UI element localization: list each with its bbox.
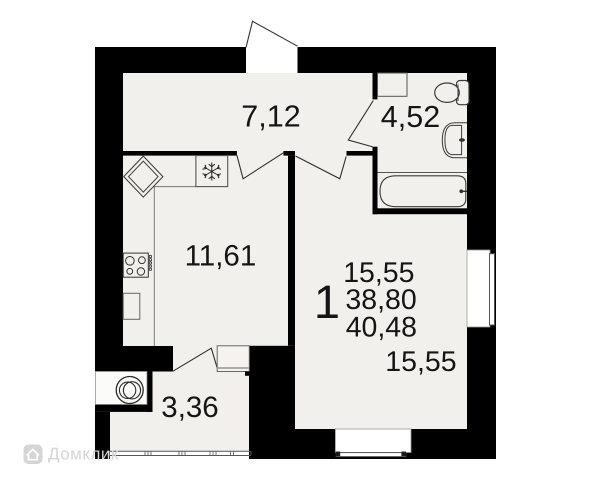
svg-text:Домклик: Домклик bbox=[48, 445, 119, 464]
svg-text:40,48: 40,48 bbox=[346, 311, 417, 343]
svg-text:1: 1 bbox=[314, 275, 340, 328]
svg-text:11,61: 11,61 bbox=[185, 239, 257, 272]
svg-text:15,55: 15,55 bbox=[385, 346, 456, 378]
svg-text:3,36: 3,36 bbox=[161, 391, 218, 424]
svg-text:7,12: 7,12 bbox=[241, 100, 300, 134]
svg-text:4,52: 4,52 bbox=[381, 100, 440, 134]
